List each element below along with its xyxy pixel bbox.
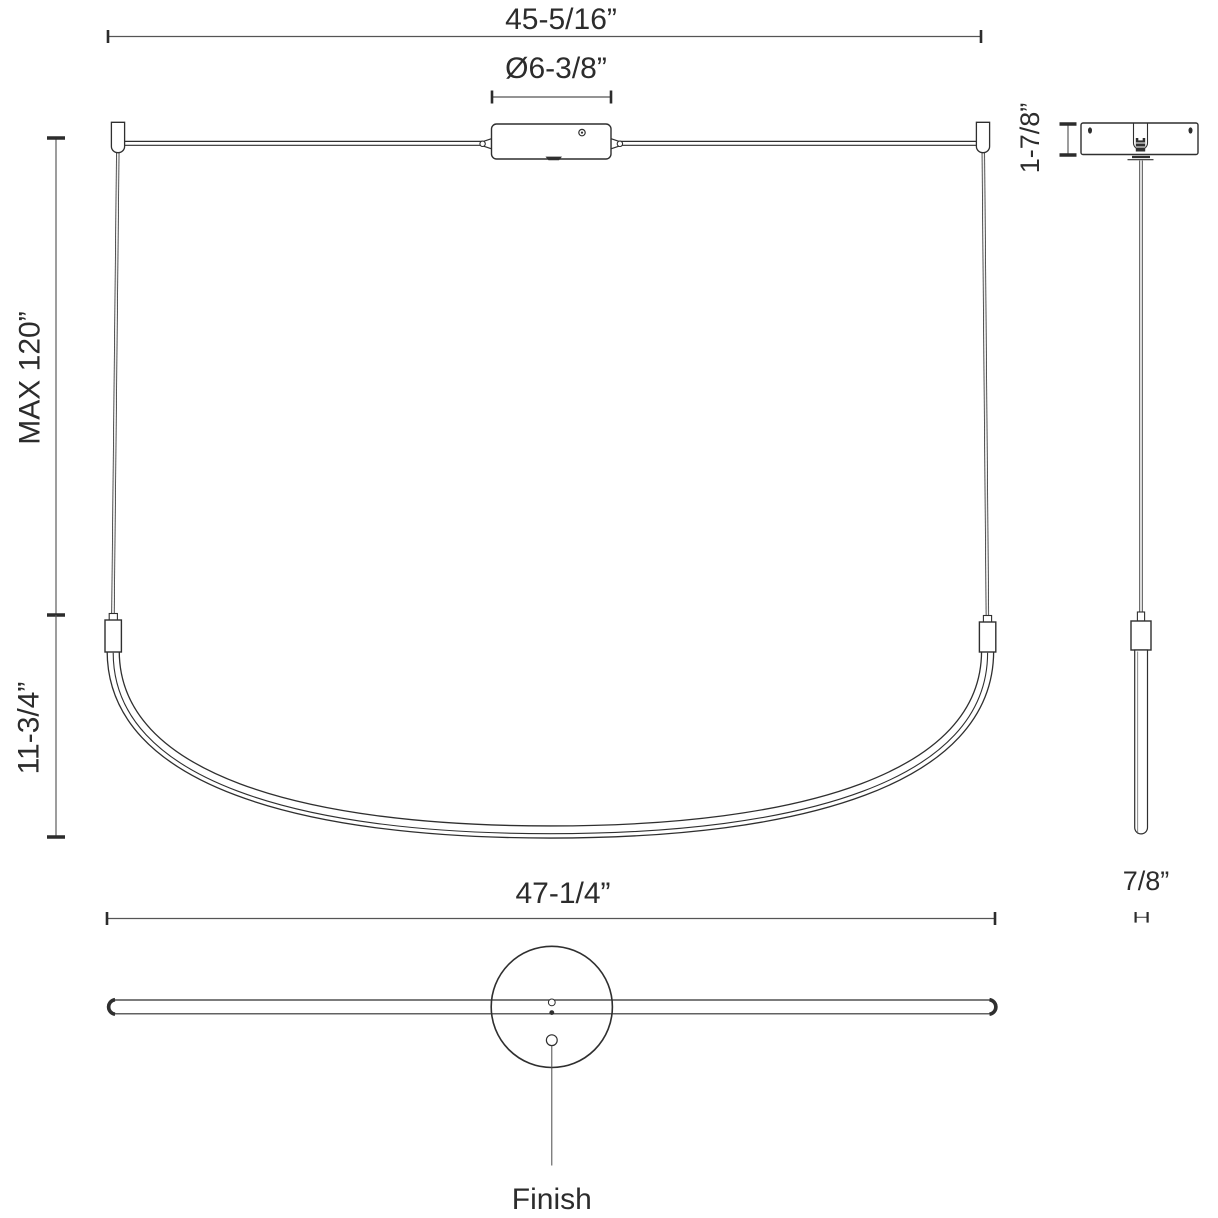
dim-canopy-diameter: Ø6-3/8” xyxy=(492,52,611,104)
tube-side-profile xyxy=(1131,612,1151,834)
dim-fixture-drop: 11-3/4” xyxy=(13,615,66,837)
dim-tube-diameter: 7/8” xyxy=(1123,866,1170,923)
cable-gripper-right xyxy=(976,122,989,152)
fixture-drop-label: 11-3/4” xyxy=(13,682,46,775)
tube-diameter-label: 7/8” xyxy=(1123,866,1170,896)
connector-knob-left xyxy=(480,141,485,146)
front-view: 45-5/16” Ø6-3/8” MAX 120” 11-3/4” xyxy=(13,3,996,837)
canopy-diameter-label: Ø6-3/8” xyxy=(505,52,607,85)
tube-end-cap-right xyxy=(979,616,995,653)
dim-max-suspension: MAX 120” xyxy=(14,138,66,615)
end-cap-body xyxy=(105,620,121,652)
suspension-cable-right xyxy=(983,150,987,615)
max-suspension-label: MAX 120” xyxy=(14,311,47,444)
cable-core xyxy=(113,150,118,619)
overall-length-label: 47-1/4” xyxy=(515,877,610,910)
canopy-body-front xyxy=(492,124,612,159)
strain-relief-notch xyxy=(1138,138,1142,140)
tube-end-cap-left xyxy=(105,614,121,653)
canopy-screw-center xyxy=(581,132,583,134)
canopy-screw xyxy=(1189,127,1193,133)
led-tube-inner-line xyxy=(113,653,987,834)
pendant-dimension-drawing: 45-5/16” Ø6-3/8” MAX 120” 11-3/4” xyxy=(0,0,1218,1218)
led-tube-outline-outer xyxy=(113,651,987,832)
led-tube-body xyxy=(113,651,987,832)
led-tube-front xyxy=(113,651,987,834)
end-cap-body xyxy=(1131,621,1151,650)
bottom-view: 47-1/4” Finish xyxy=(107,877,997,1216)
side-view: 1-7/8” xyxy=(1015,103,1198,923)
end-cap-body xyxy=(979,622,995,652)
technical-drawing-canvas: 45-5/16” Ø6-3/8” MAX 120” 11-3/4” xyxy=(0,0,1218,1218)
tube-profile xyxy=(1135,650,1148,834)
finish-reference-point xyxy=(546,1035,557,1046)
connector-knob-right xyxy=(617,141,622,146)
overall-width-label: 45-5/16” xyxy=(505,3,617,36)
suspension-cable-left xyxy=(113,150,118,619)
finish-callout: Finish xyxy=(512,1046,592,1216)
dim-overall-width: 45-5/16” xyxy=(108,3,981,43)
canopy-height-label: 1-7/8” xyxy=(1015,103,1045,174)
canopy-front xyxy=(480,124,623,160)
canopy-side-view xyxy=(1081,123,1198,160)
center-dot xyxy=(549,1010,554,1015)
cable-gripper-left xyxy=(111,122,124,152)
canopy-screw xyxy=(1088,127,1092,133)
center-pivot xyxy=(548,999,555,1006)
end-cap-nub xyxy=(1137,612,1144,621)
finish-label: Finish xyxy=(512,1183,592,1216)
dim-overall-length: 47-1/4” xyxy=(107,877,995,925)
dim-canopy-height: 1-7/8” xyxy=(1015,103,1077,174)
